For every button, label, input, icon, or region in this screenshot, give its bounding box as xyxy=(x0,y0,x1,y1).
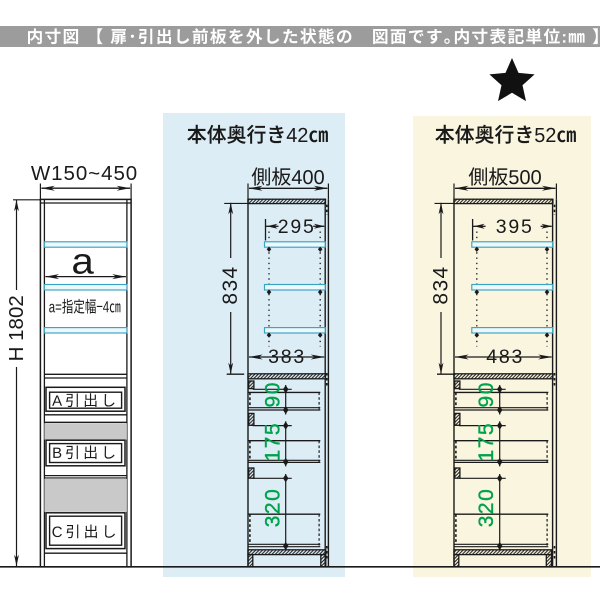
svg-text:834: 834 xyxy=(430,265,453,304)
svg-text:395: 395 xyxy=(496,216,534,238)
svg-text:175: 175 xyxy=(261,422,284,462)
svg-text:W150~450: W150~450 xyxy=(31,162,138,185)
svg-text:834: 834 xyxy=(219,265,242,304)
svg-text:90: 90 xyxy=(475,381,498,407)
svg-text:320: 320 xyxy=(475,488,498,528)
svg-text:483: 483 xyxy=(486,346,524,368)
svg-text:90: 90 xyxy=(261,381,284,407)
svg-text:175: 175 xyxy=(475,422,498,462)
svg-text:320: 320 xyxy=(261,488,284,528)
svg-text:H 1802: H 1802 xyxy=(5,295,28,361)
svg-text:295: 295 xyxy=(278,216,316,238)
svg-text:383: 383 xyxy=(268,346,306,368)
